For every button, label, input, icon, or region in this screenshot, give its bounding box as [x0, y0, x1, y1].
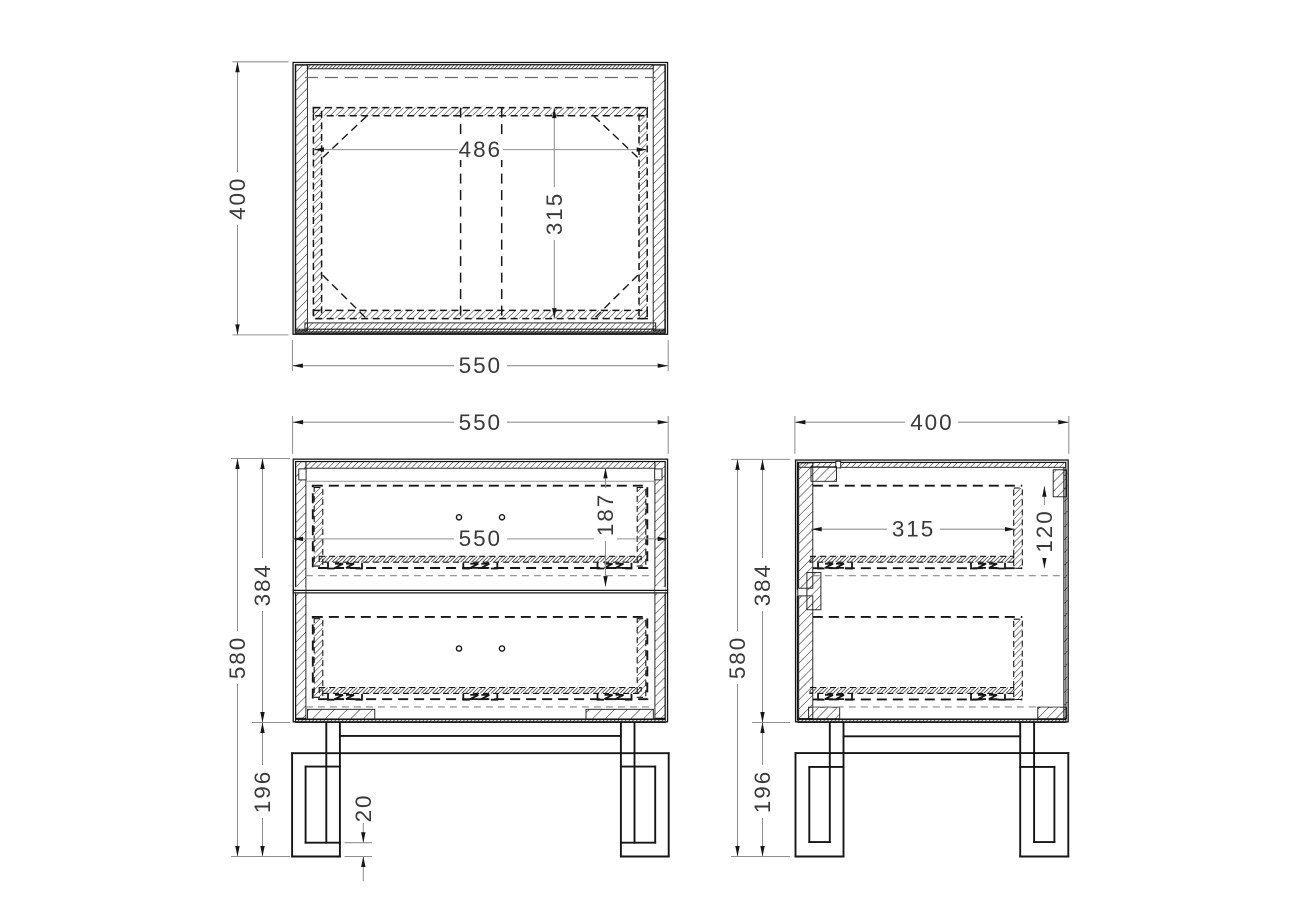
svg-text:550: 550: [459, 353, 502, 378]
svg-text:20: 20: [351, 794, 376, 823]
svg-text:580: 580: [725, 636, 750, 679]
svg-text:580: 580: [225, 636, 250, 679]
svg-text:196: 196: [250, 770, 275, 813]
svg-text:486: 486: [459, 137, 502, 162]
svg-text:384: 384: [250, 563, 275, 606]
svg-text:120: 120: [1032, 509, 1057, 552]
svg-text:550: 550: [459, 410, 502, 435]
svg-text:384: 384: [750, 563, 775, 606]
svg-text:315: 315: [892, 517, 935, 542]
svg-text:550: 550: [459, 526, 502, 551]
svg-text:400: 400: [910, 410, 953, 435]
svg-text:196: 196: [750, 770, 775, 813]
svg-text:187: 187: [593, 493, 618, 536]
svg-text:315: 315: [542, 192, 567, 235]
svg-text:400: 400: [225, 177, 250, 220]
